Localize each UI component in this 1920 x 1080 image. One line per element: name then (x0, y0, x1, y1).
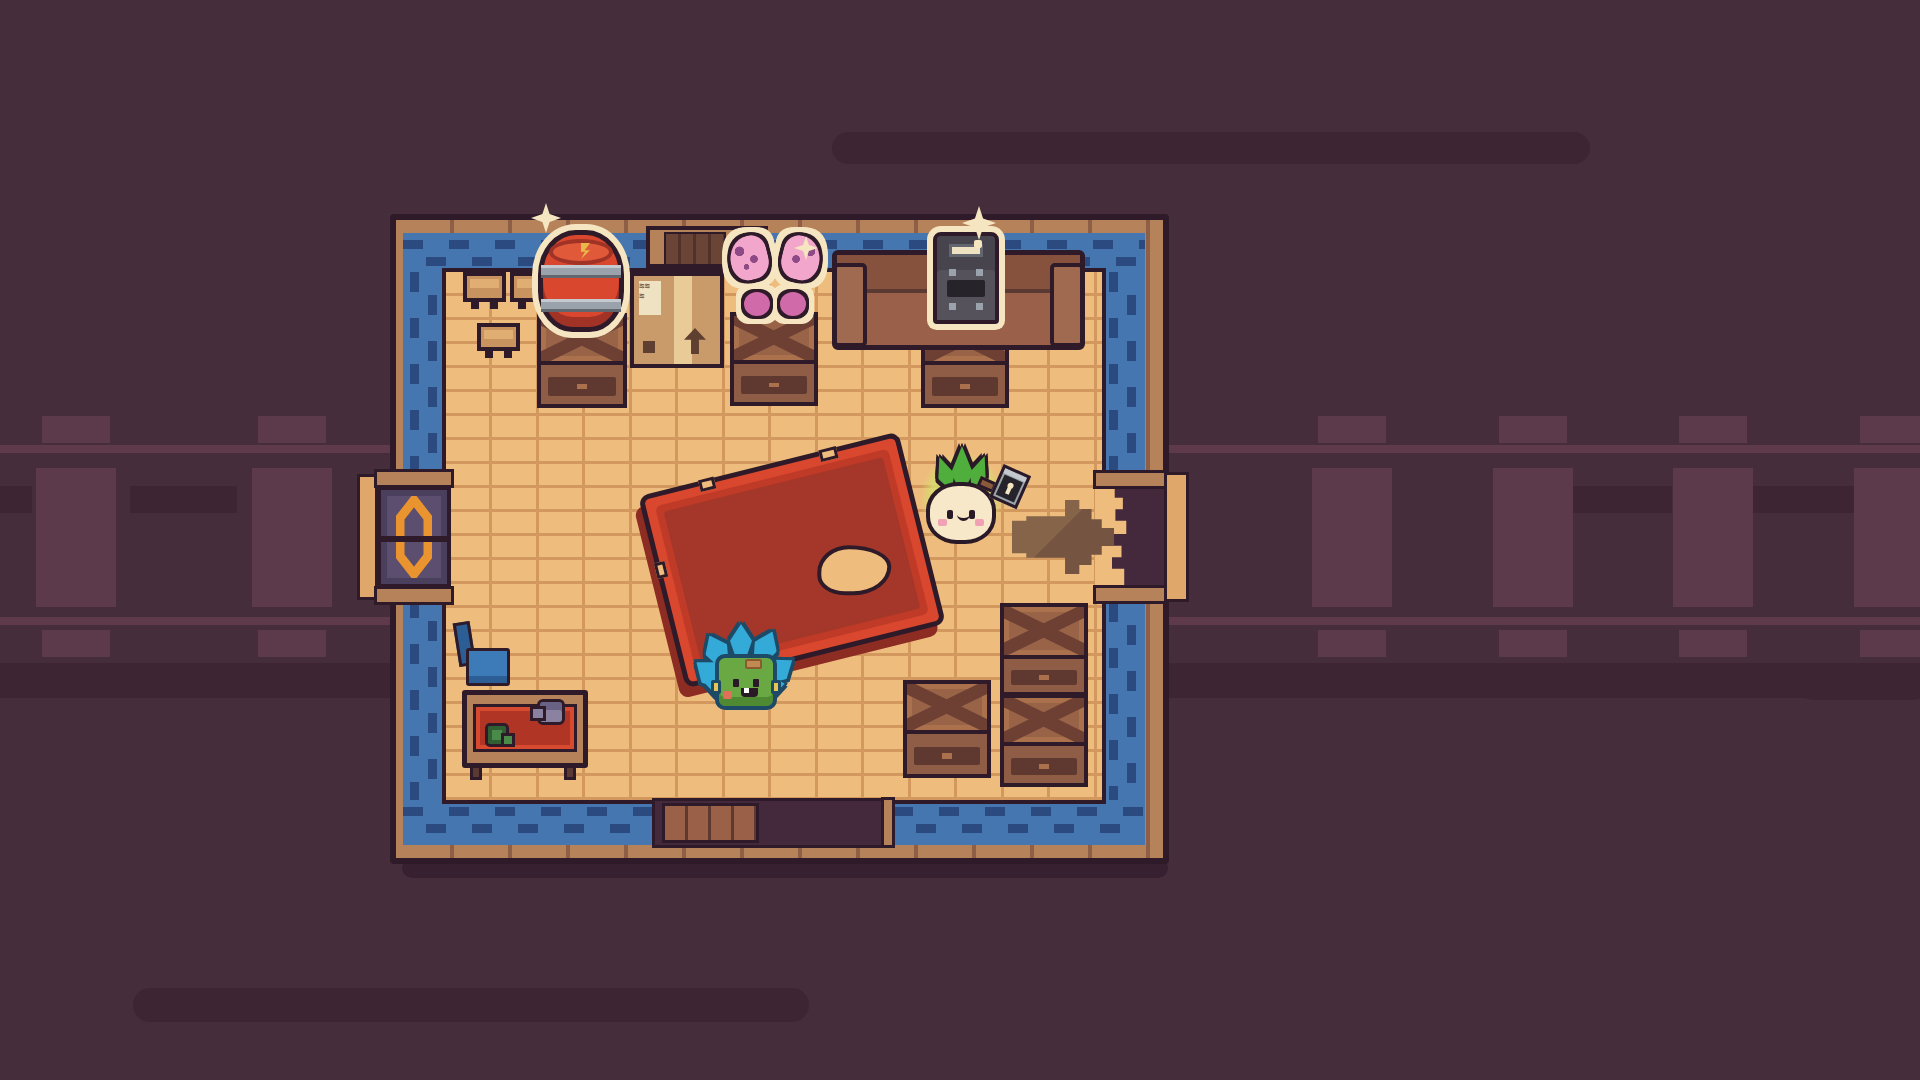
crate-top (734, 316, 814, 364)
sprite-face (715, 654, 777, 710)
wooden-crate (1000, 694, 1088, 787)
red-table-notch (698, 477, 716, 493)
stove-door (947, 280, 985, 297)
crate-front (734, 368, 814, 402)
crate-slat (548, 377, 615, 395)
player-turnip[interactable] (916, 446, 1008, 550)
crate-front (907, 738, 987, 774)
sprite-ear-right (771, 680, 781, 694)
stove-rivet (976, 303, 983, 310)
couch-armrest-right (1050, 263, 1084, 347)
turnip-eye-left (947, 510, 953, 519)
butterfly-wing-upper-left (725, 232, 773, 284)
carpet-segment (893, 800, 1145, 845)
barrel-band-upper (541, 265, 621, 278)
turnip-cheek-right (975, 519, 984, 526)
carpet-segment (1102, 272, 1145, 472)
barrel-lid (549, 239, 613, 265)
barrel-item[interactable] (538, 230, 624, 332)
butterfly-wing-upper-right (777, 232, 825, 284)
wooden-crate (1000, 603, 1088, 696)
turnip-smile (957, 512, 970, 521)
crate-front (541, 369, 623, 404)
sparkle-dot-icon (974, 240, 982, 248)
shutter-planks (664, 232, 726, 266)
crate-front (925, 369, 1005, 404)
crate-bolt (1039, 675, 1050, 679)
crate-bolt (1039, 764, 1050, 769)
crate-bolt (769, 383, 780, 388)
south-door-step[interactable] (662, 803, 759, 843)
crate-slat (1011, 670, 1077, 685)
box-fragile-icon (640, 338, 658, 356)
red-table-notch (818, 446, 838, 462)
turnip-cheek-left (938, 519, 947, 526)
sprite-head-patch (745, 659, 762, 669)
door-seam (381, 536, 447, 542)
west-door-beam-bottom (374, 586, 454, 605)
side-table-leg (518, 298, 526, 309)
crate-front (1004, 750, 1084, 783)
sprite-tooth (744, 688, 749, 693)
stove-rivet (976, 269, 983, 276)
crate-bolt (942, 753, 953, 758)
green-mug (485, 723, 509, 747)
west-sliding-door[interactable] (377, 486, 451, 588)
crate-slat (932, 377, 998, 395)
side-table-leg (485, 347, 493, 358)
carpet-segment (403, 800, 652, 845)
side-table-leg (504, 347, 512, 358)
side-table (463, 272, 506, 302)
crate-slat (914, 747, 980, 766)
stove-item[interactable] (933, 232, 999, 324)
butterfly-wing-lower-right (780, 292, 806, 316)
box-label: ≋≋≋ (639, 281, 661, 315)
side-table-leg (471, 298, 479, 309)
kettle (537, 699, 565, 725)
crate-bolt (577, 384, 588, 389)
couch-armrest-left (833, 263, 867, 347)
sprite-eye-right (753, 679, 759, 687)
wooden-crate (730, 312, 818, 406)
chair-seat (466, 648, 510, 686)
leaf-sprite-npc[interactable] (698, 628, 792, 714)
east-exit-beam-bottom (1093, 585, 1169, 604)
box-tape (674, 276, 692, 364)
crate-front (1004, 663, 1084, 692)
butterfly-wing-lower-left (744, 292, 770, 316)
game-scene: ≋≋≋ (0, 0, 1920, 1080)
side-table-rim (470, 279, 499, 288)
wooden-crate (903, 680, 991, 778)
cardboard-box: ≋≋≋ (630, 272, 724, 368)
east-exit-beam-top (1093, 470, 1169, 489)
crate-slat (741, 376, 807, 394)
sparkle-dot-icon (956, 226, 962, 232)
sprite-eye-left (733, 679, 739, 687)
blue-chair (456, 636, 518, 694)
sprite-blush (723, 691, 732, 699)
sprite-mouth (741, 688, 758, 697)
side-table-leg (490, 298, 498, 309)
sprite-ear-left (711, 680, 721, 694)
stove-rivet (949, 303, 956, 310)
side-table (477, 323, 520, 351)
barrel-band-lower (541, 299, 621, 312)
crate-bolt (960, 384, 971, 389)
stove-rivet (949, 269, 956, 276)
east-exit-plank (1164, 472, 1189, 602)
writing-desk (462, 690, 588, 768)
crate-top (1004, 607, 1084, 659)
crate-slat (1011, 758, 1077, 775)
west-door-step (357, 474, 378, 600)
crate-top (907, 684, 987, 734)
south-door-divider (881, 797, 895, 848)
side-table-rim (484, 330, 513, 339)
carpet-segment (403, 272, 446, 477)
crate-top (1004, 698, 1084, 746)
